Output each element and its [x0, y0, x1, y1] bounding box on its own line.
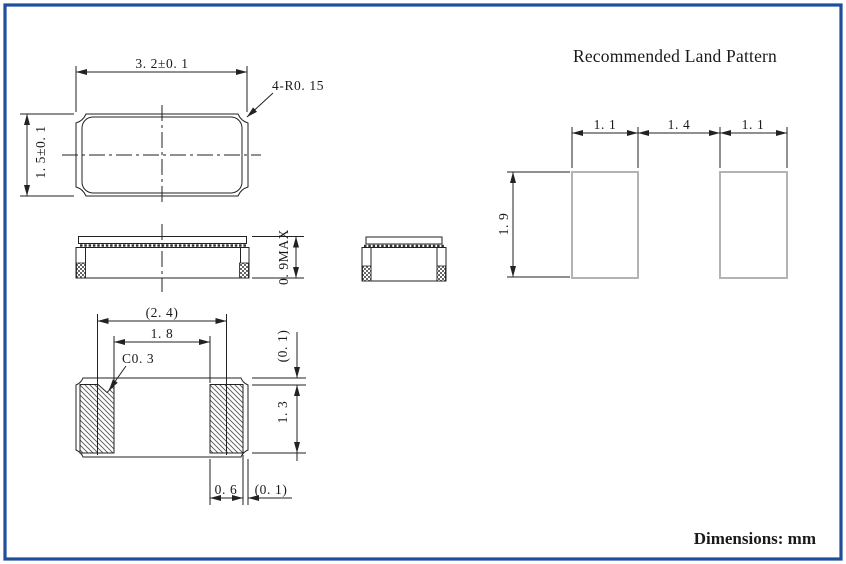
end-view [362, 237, 446, 281]
drawing-sheet: 3. 2±0. 1 1. 5±0. 1 4-R0. 15 0. 9MA [0, 0, 846, 564]
units-note: Dimensions: mm [694, 529, 816, 548]
dim-land-left-width-label: 1. 1 [594, 117, 617, 132]
dim-pad-depth: (0. 1) 1. 3 [252, 330, 306, 461]
callout-corner-radius-label: 4-R0. 15 [272, 78, 324, 93]
land-pattern-title: Recommended Land Pattern [573, 46, 777, 66]
side-view: 0. 9MAX [76, 224, 304, 292]
callout-chamfer: C0. 3 [109, 351, 154, 390]
page-border [5, 5, 841, 559]
package-dimension-drawing: 3. 2±0. 1 1. 5±0. 1 4-R0. 15 0. 9MA [0, 0, 846, 564]
dim-land-height: 1. 9 [496, 172, 570, 277]
dim-top-margin-label: (0. 1) [275, 330, 290, 363]
dim-pad-depth-label: 1. 3 [275, 401, 290, 424]
bottom-view: (2. 4) 1. 8 C0. 3 (0. 1) 1. 3 [76, 305, 306, 505]
dim-land-height-label: 1. 9 [496, 213, 511, 236]
top-view: 3. 2±0. 1 1. 5±0. 1 4-R0. 15 [20, 56, 324, 204]
dim-pad-inner-gap-label: 1. 8 [151, 326, 174, 341]
land-pattern: Recommended Land Pattern 1. 1 1. 4 1. 1 … [496, 46, 787, 278]
land-pad-right [720, 172, 787, 278]
dim-side-height: 0. 9MAX [252, 229, 304, 285]
end-view-pad-left [363, 266, 372, 281]
dim-pad-pitch-label: (2. 4) [146, 305, 179, 320]
end-view-lid [366, 237, 442, 244]
dim-top-height-label: 1. 5±0. 1 [33, 125, 48, 178]
dim-pad-width: 0. 6 (0. 1) [210, 455, 292, 505]
side-view-pad-left [77, 263, 86, 278]
dim-side-margin-label: (0. 1) [255, 482, 288, 497]
callout-corner-radius: 4-R0. 15 [247, 78, 324, 117]
dim-side-height-label: 0. 9MAX [276, 229, 291, 285]
dim-top-width-label: 3. 2±0. 1 [135, 56, 188, 71]
callout-chamfer-label: C0. 3 [122, 351, 154, 366]
end-view-body [362, 248, 446, 282]
dim-land-gap-label: 1. 4 [668, 117, 691, 132]
dim-land-widths: 1. 1 1. 4 1. 1 [572, 117, 787, 168]
dim-top-width: 3. 2±0. 1 [76, 56, 247, 112]
dim-pad-width-label: 0. 6 [215, 482, 238, 497]
side-view-pad-right [240, 263, 249, 278]
end-view-pad-right [437, 266, 446, 281]
dim-land-right-width-label: 1. 1 [742, 117, 765, 132]
land-pad-left [572, 172, 638, 278]
